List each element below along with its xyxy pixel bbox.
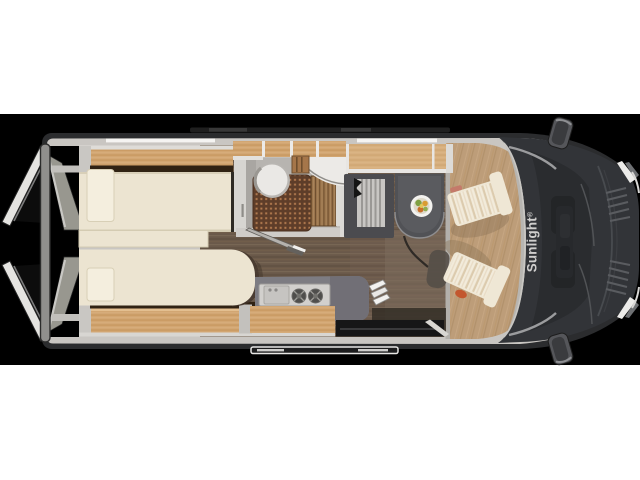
svg-text:Sunlight®: Sunlight® — [525, 211, 540, 272]
